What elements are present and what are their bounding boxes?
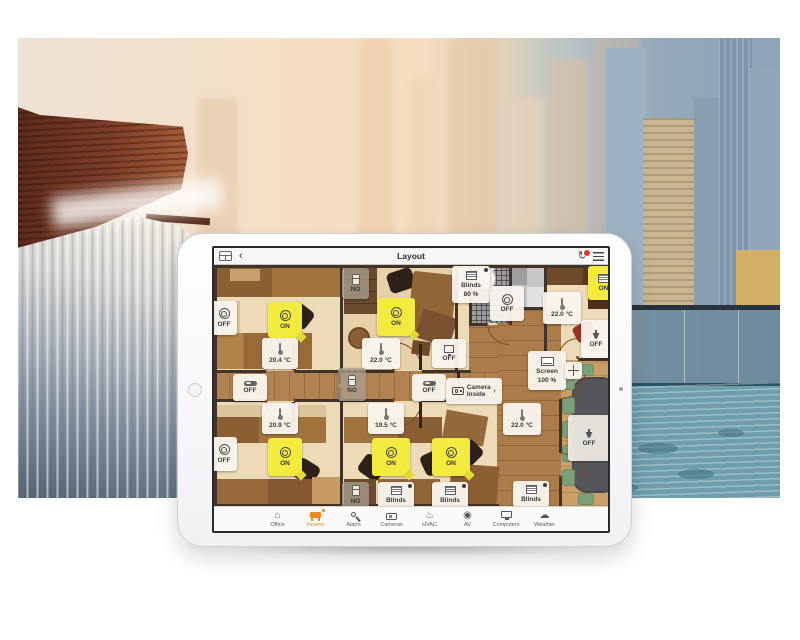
- water-patch: [638, 443, 678, 454]
- sensor-icon: [348, 375, 356, 386]
- camera-icon: [452, 387, 464, 395]
- screen-icon: [541, 357, 554, 366]
- chip-label: Screen: [536, 368, 558, 375]
- chip-label: OFF: [244, 387, 257, 394]
- record-icon: ◉: [463, 511, 472, 521]
- wall: [469, 323, 487, 326]
- thermometer-icon: [558, 298, 567, 310]
- switch-icon: [423, 381, 436, 386]
- tab-hvac[interactable]: ♨ HVAC: [417, 511, 443, 528]
- light-switch[interactable]: ON: [268, 438, 302, 476]
- blinds-control[interactable]: Blinds: [432, 482, 468, 506]
- chip-label: Blinds: [386, 497, 406, 504]
- blinds-icon: [445, 486, 456, 495]
- meeting-chair: [578, 493, 594, 505]
- water-patch: [678, 469, 714, 479]
- chip-label: ON: [280, 323, 290, 330]
- chip-label: Blinds: [461, 282, 481, 289]
- door-panel: [419, 402, 422, 428]
- chip-label: OFF: [443, 355, 456, 362]
- chip-label: OFF: [590, 341, 603, 348]
- page-title: Layout: [214, 251, 608, 261]
- light-icon: [280, 447, 291, 458]
- blinds-icon: [466, 271, 477, 280]
- projector-switch[interactable]: OFF: [568, 415, 608, 461]
- hinge-dot: [576, 356, 579, 359]
- light-icon: [219, 444, 230, 455]
- switch-icon: [244, 381, 257, 386]
- home-button[interactable]: [188, 383, 202, 397]
- chip-label: 22.0 °C: [370, 357, 392, 364]
- temperature-readout[interactable]: 22.0 °C: [362, 338, 400, 369]
- chip-label: Blinds: [521, 496, 541, 503]
- tab-label: Alarm: [346, 522, 360, 528]
- flame-icon: ♨: [425, 511, 434, 521]
- tab-bar: ⌂ Office Rooms Alarm Cameras ♨ HVAC: [214, 506, 608, 531]
- blinds-control[interactable]: Blinds: [513, 481, 549, 506]
- temperature-readout[interactable]: 20.4 °C: [262, 338, 298, 369]
- key-icon: [351, 511, 356, 521]
- chip-label: ON: [599, 285, 608, 292]
- projector-icon: [591, 330, 601, 340]
- rooms-grid-icon: [310, 511, 321, 521]
- chip-label: OFF: [501, 306, 514, 313]
- chip-value: Inside: [467, 391, 486, 398]
- tab-rooms[interactable]: Rooms: [303, 511, 329, 528]
- chip-label: OFF: [218, 321, 231, 328]
- temperature-readout[interactable]: 20.9 °C: [262, 403, 298, 434]
- sensor-icon: [352, 274, 360, 285]
- chip-badge: [484, 268, 488, 272]
- glass-seam: [684, 310, 685, 386]
- lit-building: [736, 250, 780, 308]
- tablet: ‹ Layout ↻: [177, 233, 632, 547]
- chip-badge: [462, 484, 466, 488]
- arrows-icon: [568, 365, 579, 376]
- camera-icon: [386, 511, 397, 521]
- chip-badge: [408, 484, 412, 488]
- hinge-dot: [559, 475, 562, 478]
- tab-computers[interactable]: Computers: [493, 511, 520, 528]
- monitor-icon: [501, 511, 512, 521]
- chip-label: 20.4 °C: [269, 357, 291, 364]
- move-arrows-icon[interactable]: [565, 362, 582, 379]
- chip-label: Blinds: [440, 497, 460, 504]
- tab-office[interactable]: ⌂ Office: [265, 511, 291, 528]
- light-icon: [386, 447, 397, 458]
- chip-value: 100 %: [538, 377, 556, 384]
- thermometer-icon: [377, 343, 386, 355]
- tab-alarm[interactable]: Alarm: [341, 511, 367, 528]
- door-sensor: NO: [342, 268, 369, 299]
- chip-label: 22.0 °C: [551, 311, 573, 318]
- chip-badge: [543, 483, 547, 487]
- blinds-control[interactable]: Blinds 80 %: [452, 266, 490, 303]
- desk: [230, 269, 260, 281]
- camera-text: Camera Inside: [467, 384, 491, 398]
- projector-switch[interactable]: OFF: [581, 320, 608, 358]
- tab-weather[interactable]: ☁ Weather: [531, 511, 557, 528]
- tab-av[interactable]: ◉ AV: [455, 511, 481, 528]
- monitor-icon: [444, 345, 454, 353]
- wall: [559, 477, 562, 506]
- door-sensor: NO: [342, 482, 369, 506]
- light-switch[interactable]: OFF: [490, 286, 524, 321]
- tab-label: Weather: [534, 522, 555, 528]
- hinge-dot: [293, 398, 296, 401]
- wall: [422, 370, 471, 373]
- thermometer-icon: [518, 409, 527, 421]
- projector-icon: [584, 429, 594, 439]
- cloud-icon: ☁: [539, 511, 549, 521]
- braced-tower: [643, 118, 695, 308]
- av-switch[interactable]: OFF: [432, 339, 466, 368]
- water-patch: [718, 429, 744, 437]
- chip-label: 22.0 °C: [511, 422, 533, 429]
- sensor-icon: [352, 485, 360, 496]
- chip-label: Camera: [467, 384, 491, 391]
- floor-plan: OFF ON 20.4 °C NO ON: [214, 265, 608, 506]
- hinge-dot: [507, 321, 510, 324]
- blinds-icon: [526, 485, 537, 494]
- tab-label: Computers: [493, 522, 520, 528]
- chip-value: 80 %: [464, 291, 479, 298]
- wall: [214, 370, 266, 373]
- light-switch[interactable]: ON: [377, 298, 415, 336]
- tab-badge: [322, 509, 326, 513]
- desk: [312, 477, 341, 506]
- blinds-icon: [598, 274, 608, 283]
- light-switch[interactable]: ON: [372, 438, 410, 476]
- light-switch[interactable]: OFF: [412, 374, 446, 401]
- blinds-control[interactable]: ON: [588, 266, 608, 300]
- camera-button[interactable]: Camera Inside ›: [446, 378, 502, 404]
- chip-label: NO: [351, 286, 361, 293]
- hinge-dot: [392, 398, 395, 401]
- chip-label: ON: [386, 460, 396, 467]
- light-icon: [502, 294, 513, 305]
- chip-label: ON: [280, 460, 290, 467]
- thermometer-icon: [382, 408, 391, 420]
- chip-label: 19.5 °C: [375, 422, 397, 429]
- menu-icon[interactable]: [593, 252, 604, 261]
- chevron-right-icon: ›: [493, 387, 496, 396]
- wall: [578, 358, 608, 361]
- door-sensor: NO: [338, 368, 366, 401]
- screen-control[interactable]: Screen 100 %: [528, 351, 566, 390]
- chip-label: ON: [446, 460, 456, 467]
- light-icon: [391, 307, 402, 318]
- meeting-chair: [562, 397, 575, 414]
- light-icon: [219, 308, 230, 319]
- chip-label: OFF: [218, 457, 231, 464]
- front-camera: [619, 387, 623, 391]
- desk: [214, 479, 312, 506]
- temperature-readout[interactable]: 19.5 °C: [368, 403, 404, 434]
- blinds-icon: [391, 486, 402, 495]
- door-panel: [419, 344, 422, 370]
- glass-seam: [738, 310, 739, 386]
- light-icon: [280, 310, 291, 321]
- tab-label: HVAC: [422, 522, 437, 528]
- tab-label: AV: [464, 522, 471, 528]
- tab-label: Office: [270, 522, 284, 528]
- light-switch[interactable]: OFF: [214, 437, 237, 471]
- light-switch[interactable]: OFF: [233, 374, 267, 401]
- house-icon: ⌂: [275, 511, 281, 521]
- page: ‹ Layout ↻: [0, 0, 800, 640]
- wall: [559, 399, 562, 453]
- tablet-screen: ‹ Layout ↻: [212, 246, 610, 533]
- chip-label: NO: [351, 498, 361, 505]
- wall: [214, 265, 608, 268]
- chip-label: OFF: [423, 387, 436, 394]
- kitchen-counter: [511, 265, 527, 285]
- thermometer-icon: [276, 408, 285, 420]
- tab-cameras[interactable]: Cameras: [379, 511, 405, 528]
- temperature-readout[interactable]: 22.0 °C: [543, 292, 581, 324]
- light-switch[interactable]: ON: [432, 438, 470, 476]
- chip-label: 20.9 °C: [269, 422, 291, 429]
- light-switch[interactable]: OFF: [214, 301, 237, 335]
- chip-label: NO: [347, 387, 357, 394]
- refresh-icon[interactable]: ↻: [578, 251, 587, 262]
- chip-label: OFF: [583, 440, 596, 447]
- light-icon: [446, 447, 457, 458]
- alert-badge: [583, 249, 591, 257]
- light-switch[interactable]: ON: [268, 302, 302, 338]
- chip-label: ON: [391, 320, 401, 327]
- kitchen-counter: [527, 287, 544, 307]
- blinds-control[interactable]: Blinds: [378, 482, 414, 506]
- tab-label: Rooms: [307, 522, 324, 528]
- top-bar: ‹ Layout ↻: [214, 248, 608, 265]
- tab-label: Cameras: [380, 522, 402, 528]
- thermometer-icon: [276, 343, 285, 355]
- nav-right: ↻: [578, 248, 604, 265]
- temperature-readout[interactable]: 22.0 °C: [503, 403, 541, 435]
